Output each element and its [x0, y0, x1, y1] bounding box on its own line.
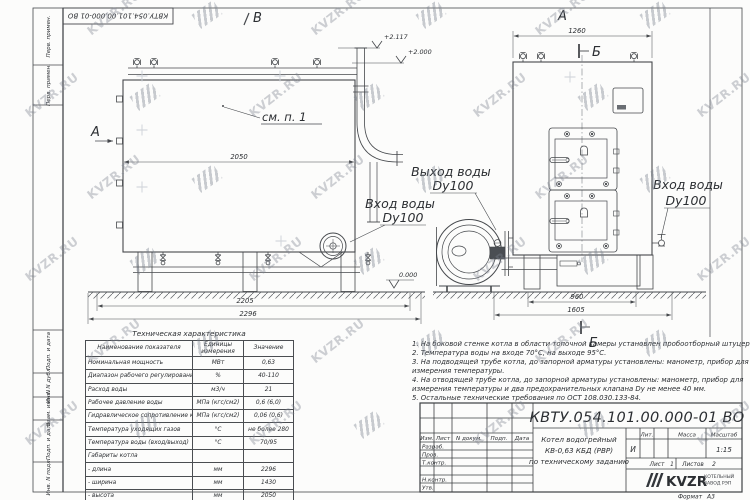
tech-cell-value: 1430 [244, 476, 294, 489]
tech-row: Температура уходящих газов°Сне более 280 [86, 423, 294, 436]
tech-cell-unit: % [193, 370, 244, 383]
view-label-a-top: А [557, 9, 567, 24]
tb-sheet-label: Лист [649, 462, 665, 468]
tb-lit-value: И [630, 445, 636, 454]
tech-row: Диапазон рабочего регулирования%40-110 [86, 370, 294, 383]
tech-cell-unit: мм [193, 489, 244, 500]
stamp-label-perv-primen-2: Перв. примен. [46, 64, 52, 106]
tb-org-line1: КОТЕЛЬНЫЙ [704, 473, 734, 480]
tech-cell-name: Расход воды [86, 383, 193, 396]
elevation-top1: +2.117 [384, 33, 408, 41]
tb-lit-header: Лит. [640, 433, 654, 439]
tech-cell-value: 40-110 [244, 370, 294, 383]
tb-title-line3: по техническому заданию [529, 457, 629, 466]
tech-cell-unit: МВт [193, 357, 244, 370]
drawing-sheet: КВТУ.054.101.00.000-01 ВО Перв. примен. … [0, 0, 750, 500]
dim-front-base-outer: 1605 [567, 306, 584, 314]
tb-title-line2: КВ-0,63 КБД (РВР) [545, 446, 613, 455]
tech-table-title: Техническая характеристика [85, 329, 293, 338]
tech-cell-value: 0,06 (0,6) [244, 410, 294, 423]
tech-cell-value: 2050 [244, 489, 294, 500]
tb-header-ndokum: N докум. [456, 436, 482, 442]
see-note-callout: см. п. 1 [262, 110, 306, 124]
tech-cell-name: Диапазон рабочего регулирования [86, 370, 193, 383]
tech-table: Наименование показателя Единицы измерени… [85, 340, 294, 500]
tech-cell-unit: °С [193, 423, 244, 436]
tech-cell-name: Рабочее давление воды [86, 396, 193, 409]
tech-header-value: Значение [244, 341, 294, 357]
tb-role-razrab: Разраб. [422, 445, 444, 451]
tb-sheet-value: 1 [670, 462, 674, 468]
tb-sheets-label: Листов [681, 462, 704, 468]
inlet-port-size: Dy100 [383, 210, 424, 225]
tb-role-tkontr: Т.контр. [422, 461, 446, 467]
section-label-b-top: Б [592, 45, 601, 60]
dimension-lines [88, 31, 672, 324]
tb-role-utv: Утв. [422, 486, 434, 492]
elevation-marks [338, 41, 414, 288]
dim-base-inner: 2205 [236, 297, 253, 305]
section-marks [95, 13, 590, 334]
tb-title-line1: Котел водогрейный [541, 435, 617, 444]
tech-cell-value [244, 450, 294, 463]
tech-cell-unit: мм [193, 476, 244, 489]
tech-cell-name: Номинальная мощность [86, 357, 193, 370]
tech-row: Температура воды (вход/выход)°С70/95 [86, 436, 294, 449]
tb-format-value: А3 [706, 494, 715, 500]
dim-front-width: 1260 [568, 27, 585, 35]
tech-cell-name: Температура воды (вход/выход) [86, 436, 193, 449]
stamp-label-podp-data-2: Подп. и дата [46, 421, 52, 460]
tb-role-prov: Пров. [422, 453, 438, 459]
tech-cell-value: 0,63 [244, 357, 294, 370]
tb-org-line2: ЗАВОД РЭП [704, 481, 731, 487]
elevation-ground: 0.000 [399, 271, 417, 279]
tech-cell-name: Температура уходящих газов [86, 423, 193, 436]
tech-row: - высотамм2050 [86, 489, 294, 500]
stamp-label-vzam-inv: Взам. инв. N [46, 389, 52, 426]
tech-cell-unit: мм [193, 463, 244, 476]
tb-header-list: Лист [435, 436, 451, 442]
tech-header-row: Наименование показателя Единицы измерени… [86, 341, 294, 357]
tb-mass-header: Масса [678, 433, 696, 439]
note-line: 3. На подводящей трубе котла, до запорно… [412, 358, 750, 367]
tech-cell-unit: м3/ч [193, 383, 244, 396]
inlet-port-label: Вход воды [365, 196, 435, 211]
tech-cell-value: 70/95 [244, 436, 294, 449]
note-line: 2. Температура воды на входе 70°С, на вы… [412, 349, 750, 358]
tech-cell-unit: °С [193, 436, 244, 449]
tb-format-label: Формат [678, 494, 703, 500]
tb-header-izm: Изм. [420, 436, 433, 442]
tech-row: Рабочее давление водыМПа (кгс/см2)0,6 (6… [86, 396, 294, 409]
tech-header-name: Наименование показателя [86, 341, 193, 357]
tech-cell-value: 2296 [244, 463, 294, 476]
dim-side-width: 2050 [230, 153, 247, 161]
tech-cell-unit: МПа (кгс/см2) [193, 396, 244, 409]
elevation-top2: +2.000 [408, 48, 432, 56]
kvzr-logo-icon [646, 473, 664, 487]
note-line: 1. На боковой стенке котла в области топ… [412, 340, 750, 349]
dim-base-outer: 2296 [239, 310, 257, 318]
view-label-v: В [253, 11, 262, 26]
stamp-label-inv-podl: Инв. N подл. [46, 458, 52, 495]
tb-scale-header: Масштаб [711, 433, 738, 439]
view-label-a-side: А [90, 125, 100, 140]
tech-row: - ширинамм1430 [86, 476, 294, 489]
tech-cell-name: Гидравлическое сопротивление котла [86, 410, 193, 423]
inverted-doc-number: КВТУ.054.101.00.000-01 ВО [67, 12, 168, 20]
outlet-port-size: Dy100 [433, 178, 474, 193]
inlet2-port-size: Dy100 [666, 193, 707, 208]
tech-row: Расход водым3/ч21 [86, 383, 294, 396]
note-line: 4. На отводящей трубе котла, до запорной… [412, 376, 750, 385]
tech-row: - длинамм2296 [86, 463, 294, 476]
stamp-label-podp-data-1: Подп. и дата [46, 331, 52, 370]
outlet-port-label: Выход воды [411, 164, 491, 179]
tb-logo-text: KVZR [666, 474, 708, 490]
tech-cell-name: - высота [86, 489, 193, 500]
technical-notes: 1. На боковой стенке котла в области топ… [412, 340, 750, 403]
note-line: измерения температуры. [412, 367, 750, 376]
tb-role-nkontr: Н.контр. [422, 478, 447, 484]
tech-header-unit: Единицы измерения [193, 341, 244, 357]
boiler-front-view [513, 55, 666, 289]
note-line: 5. Остальные технические требования по О… [412, 394, 750, 403]
stamp-label-perv-primen-1: Перв. примен. [46, 15, 52, 57]
tech-cell-value: не более 280 [244, 423, 294, 436]
tech-row: Габариты котла [86, 450, 294, 463]
tech-characteristics-block: Техническая характеристика Наименование … [85, 329, 293, 500]
tech-cell-name: - ширина [86, 476, 193, 489]
tb-header-podp: Подп. [491, 436, 508, 442]
boiler-side-view [117, 48, 404, 292]
tb-sheets-value: 2 [712, 462, 716, 468]
inlet2-port-label: Вход воды [653, 177, 723, 192]
tb-scale-value: 1:15 [716, 446, 732, 454]
tech-row: Гидравлическое сопротивление котлаМПа (к… [86, 410, 294, 423]
tech-cell-value: 0,6 (6,0) [244, 396, 294, 409]
note-line: измерения температуры и два предохраните… [412, 385, 750, 394]
tb-doc-number: КВТУ.054.101.00.000-01 ВО [529, 410, 744, 426]
tech-cell-name: Габариты котла [86, 450, 193, 463]
tech-cell-unit [193, 450, 244, 463]
tech-row: Номинальная мощностьМВт0,63 [86, 357, 294, 370]
tb-header-data: Дата [514, 436, 530, 442]
tech-cell-value: 21 [244, 383, 294, 396]
dim-front-base-inner: 960 [571, 293, 584, 301]
tech-cell-name: - длина [86, 463, 193, 476]
ground-line [88, 292, 706, 299]
tech-cell-unit: МПа (кгс/см2) [193, 410, 244, 423]
